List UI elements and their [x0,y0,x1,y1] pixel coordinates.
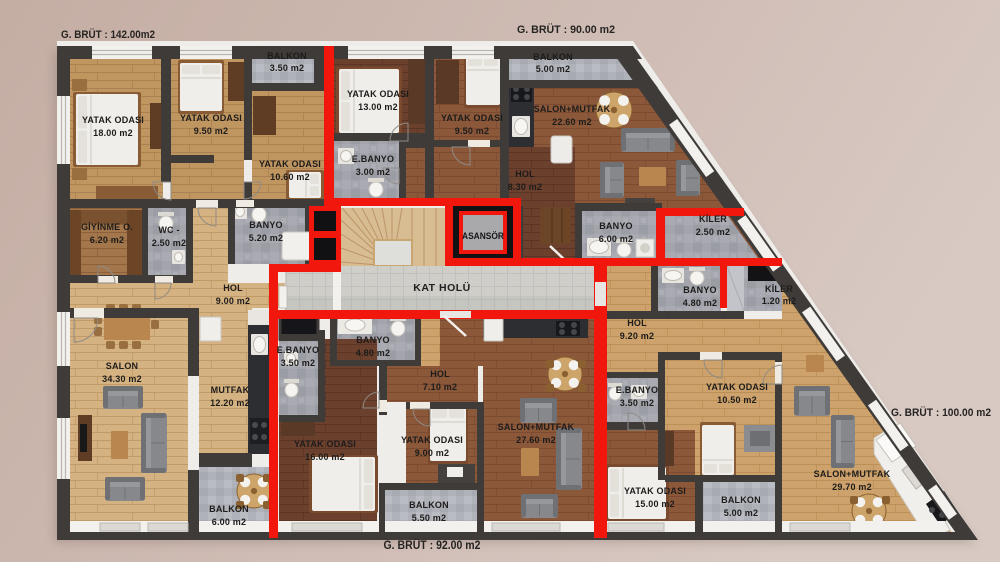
svg-text:HOL: HOL [515,169,535,179]
svg-text:12.20 m2: 12.20 m2 [210,398,250,408]
svg-text:HOL: HOL [627,318,647,328]
svg-text:BANYO: BANYO [356,335,390,345]
svg-text:10.50 m2: 10.50 m2 [717,395,757,405]
svg-text:BANYO: BANYO [599,221,633,231]
svg-text:G. BRÜT : 90.00 m2: G. BRÜT : 90.00 m2 [517,23,615,36]
svg-text:34.30 m2: 34.30 m2 [102,374,142,384]
svg-text:YATAK ODASI: YATAK ODASI [180,113,242,123]
svg-text:SALON+MUTFAK: SALON+MUTFAK [498,422,575,432]
svg-text:YATAK ODASI: YATAK ODASI [441,113,503,123]
svg-text:5.00 m2: 5.00 m2 [536,64,570,74]
svg-text:GİYİNME O.: GİYİNME O. [81,222,133,232]
svg-text:27.60 m2: 27.60 m2 [516,435,556,445]
svg-text:15.00 m2: 15.00 m2 [635,499,675,509]
svg-text:1.20 m2: 1.20 m2 [762,296,796,306]
svg-text:22.60 m2: 22.60 m2 [552,117,592,127]
svg-text:G. BRÜT : 92.00 m2: G. BRÜT : 92.00 m2 [384,539,481,552]
svg-text:YATAK ODASI: YATAK ODASI [82,115,144,125]
svg-text:5.00 m2: 5.00 m2 [724,508,758,518]
svg-text:YATAK ODASI: YATAK ODASI [347,89,409,99]
svg-text:YATAK ODASI: YATAK ODASI [294,439,356,449]
svg-text:KAT HOLÜ: KAT HOLÜ [413,281,470,294]
svg-text:KİLER: KİLER [765,284,793,294]
svg-text:5.20 m2: 5.20 m2 [249,233,283,243]
svg-text:BALKON: BALKON [721,495,761,505]
svg-text:18.00 m2: 18.00 m2 [93,128,133,138]
svg-text:6.20 m2: 6.20 m2 [90,235,124,245]
svg-text:MUTFAK: MUTFAK [211,385,250,395]
svg-text:BALKON: BALKON [409,500,449,510]
svg-text:2.50 m2: 2.50 m2 [152,238,186,248]
svg-text:9.50 m2: 9.50 m2 [455,126,489,136]
svg-text:G. BRÜT : 100.00 m2: G. BRÜT : 100.00 m2 [891,406,991,419]
svg-text:3.00 m2: 3.00 m2 [356,167,390,177]
svg-text:E.BANYO: E.BANYO [277,345,319,355]
svg-text:YATAK ODASI: YATAK ODASI [624,486,686,496]
svg-text:YATAK ODASI: YATAK ODASI [401,435,463,445]
svg-text:7.10 m2: 7.10 m2 [423,382,457,392]
svg-text:SALON: SALON [106,361,139,371]
svg-text:3.50 m2: 3.50 m2 [281,358,315,368]
svg-text:10.60 m2: 10.60 m2 [270,172,310,182]
svg-text:16.00 m2: 16.00 m2 [305,452,345,462]
svg-text:E.BANYO: E.BANYO [616,385,658,395]
svg-text:BALKON: BALKON [533,52,573,62]
svg-text:HOL: HOL [430,369,450,379]
svg-text:3.50 m2: 3.50 m2 [270,63,304,73]
svg-text:YATAK ODASI: YATAK ODASI [706,382,768,392]
svg-text:2.50 m2: 2.50 m2 [696,227,730,237]
svg-text:29.70 m2: 29.70 m2 [832,482,872,492]
svg-text:BANYO: BANYO [683,285,717,295]
svg-text:4.80 m2: 4.80 m2 [356,348,390,358]
svg-text:6.00 m2: 6.00 m2 [599,234,633,244]
svg-text:HOL: HOL [223,283,243,293]
svg-text:9.00 m2: 9.00 m2 [415,448,449,458]
svg-text:SALON+MUTFAK: SALON+MUTFAK [534,104,611,114]
svg-text:BALKON: BALKON [209,504,249,514]
svg-text:WC -: WC - [158,225,179,235]
svg-text:13.00 m2: 13.00 m2 [358,102,398,112]
svg-text:5.50 m2: 5.50 m2 [412,513,446,523]
svg-text:8.30 m2: 8.30 m2 [508,182,542,192]
svg-text:KİLER: KİLER [699,214,727,224]
svg-text:G. BRÜT : 142.00m2: G. BRÜT : 142.00m2 [61,28,155,41]
svg-text:3.50 m2: 3.50 m2 [620,398,654,408]
svg-text:SALON+MUTFAK: SALON+MUTFAK [814,469,891,479]
svg-text:4.80 m2: 4.80 m2 [683,298,717,308]
svg-text:9.00 m2: 9.00 m2 [216,296,250,306]
svg-text:6.00 m2: 6.00 m2 [212,517,246,527]
svg-text:E.BANYO: E.BANYO [352,154,394,164]
svg-text:BANYO: BANYO [249,220,283,230]
svg-text:9.50 m2: 9.50 m2 [194,126,228,136]
svg-text:YATAK ODASI: YATAK ODASI [259,159,321,169]
svg-text:9.20 m2: 9.20 m2 [620,331,654,341]
svg-text:BALKON: BALKON [267,51,307,61]
svg-text:ASANSÖR: ASANSÖR [462,231,504,241]
